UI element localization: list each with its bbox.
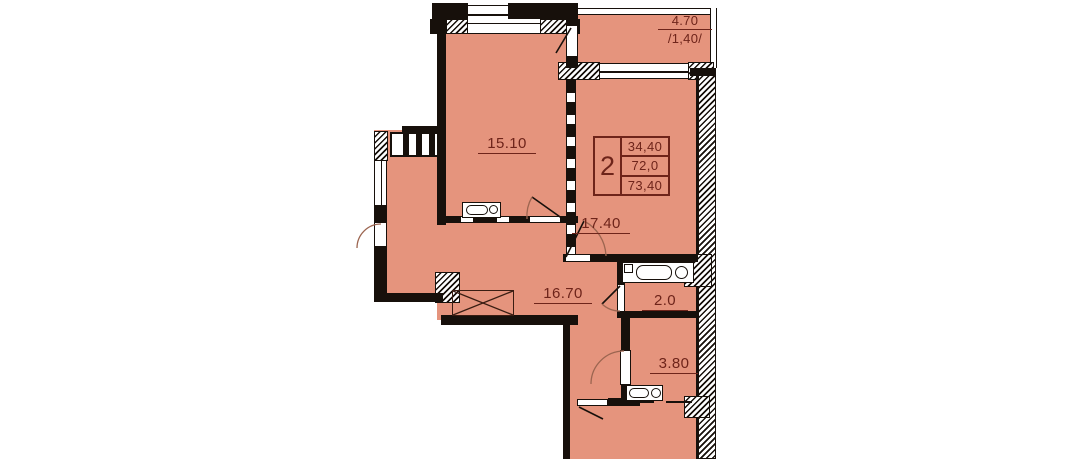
bathtub-faucet (624, 264, 633, 273)
window-pane-line (381, 161, 383, 205)
wall-hatch-segment (558, 62, 600, 80)
wall-hatch-segment (446, 19, 468, 34)
window-mullioned-extension (390, 132, 444, 157)
kitchen-sink-burner (489, 205, 498, 214)
room-label-toilet: 3.80 (650, 355, 698, 374)
kitchen-sink-basin (466, 205, 488, 215)
window-mullion (429, 134, 435, 155)
wall-living-left (437, 19, 446, 225)
window-left-wall (374, 161, 387, 205)
window-pane-line (600, 71, 688, 73)
door-opening-living (530, 216, 560, 223)
room-label-living: 15.10 (478, 135, 536, 154)
wall-segment (432, 3, 468, 19)
door-leaf-left-balcony (374, 222, 387, 247)
wall-segment (374, 205, 387, 222)
wall-segment (374, 247, 387, 293)
washbasin-drain (651, 388, 661, 398)
window-mullion (403, 134, 409, 155)
washbasin-basin (629, 388, 649, 398)
wall-extension-bottom (374, 293, 443, 302)
door-leaf-bottom-room (577, 399, 608, 406)
balcony-area-full: 4.70 (658, 13, 712, 30)
bathtub-basin (636, 265, 672, 280)
wall-segment (690, 68, 716, 76)
window-mullion (416, 134, 422, 155)
door-opening-bathroom (617, 285, 625, 311)
window-pane-line (468, 23, 540, 25)
summary-areas: 34,40 72,0 73,40 (622, 138, 668, 194)
room-label-bedroom: 17.40 (572, 215, 630, 234)
door-opening-balcony (566, 26, 578, 56)
bathtub-drain (675, 266, 688, 279)
wall-bathroom-bottom (617, 311, 698, 318)
summary-floor-area: 72,0 (622, 155, 668, 176)
summary-living-area: 34,40 (622, 138, 668, 155)
wall-bedroom-bottom (590, 254, 698, 262)
wall-column-left (563, 325, 570, 459)
balcony-label: 4.70 /1,40/ (658, 13, 712, 46)
wall-toilet-left (621, 318, 630, 350)
room-label-bathroom: 2.0 (642, 292, 688, 311)
wall-thin-line (666, 401, 692, 403)
balcony-area-reduced: /1,40/ (658, 30, 712, 46)
wall-hallway-bottom (441, 315, 578, 325)
summary-total-area: 73,40 (622, 177, 668, 194)
wall-extension-top (402, 126, 444, 132)
wall-hatch-segment (374, 131, 388, 161)
window-balcony-band (600, 63, 688, 79)
door-leaf-toilet (620, 350, 631, 385)
wall-segment (566, 56, 578, 68)
wall-segment (566, 14, 578, 26)
summary-rooms-count: 2 (595, 138, 622, 194)
summary-box: 2 34,40 72,0 73,40 (593, 136, 670, 196)
vent-shaft-lower (684, 396, 710, 418)
wardrobe-icon (452, 290, 514, 316)
door-opening-bedroom (566, 254, 590, 262)
wall-thin-line (640, 401, 654, 403)
floor-plan: 15.10 17.40 16.70 2.0 3.80 4.70 /1,40/ 2… (0, 0, 1085, 459)
room-label-hallway: 16.70 (534, 285, 592, 304)
